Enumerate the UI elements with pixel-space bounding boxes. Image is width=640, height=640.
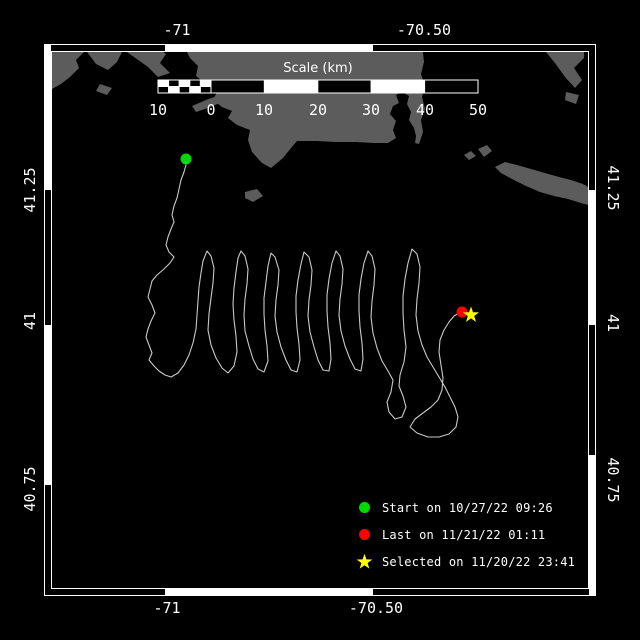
axis-label-top: -71 [163, 22, 190, 38]
axis-label-right: 40.75 [605, 457, 621, 502]
scalebar-tick-label: 10 [255, 101, 273, 119]
legend-item-start-dot: Start on 10/27/22 09:26 [356, 499, 553, 517]
legend-item-selected-star: Selected on 11/20/22 23:41 [356, 553, 575, 571]
axis-label-left: 41 [22, 312, 38, 330]
last-dot-icon [356, 527, 373, 544]
scalebar-tick-label: 20 [309, 101, 327, 119]
axis-label-right: 41.25 [605, 165, 621, 210]
scalebar-title: Scale (km) [283, 61, 352, 76]
tracking-map[interactable]: -71-70.50-71-70.5041.254140.7541.254140.… [0, 0, 640, 640]
axis-label-left: 41.25 [22, 167, 38, 212]
legend-item-last-dot: Last on 11/21/22 01:11 [356, 526, 545, 544]
scalebar-tick-label: 30 [362, 101, 380, 119]
axis-overlay: -71-70.50-71-70.5041.254140.7541.254140.… [0, 0, 640, 640]
legend-item-label: Selected on 11/20/22 23:41 [382, 555, 575, 569]
scalebar-tick-label: 0 [206, 101, 215, 119]
scalebar-tick-label: 50 [469, 101, 487, 119]
legend-item-label: Start on 10/27/22 09:26 [382, 501, 553, 515]
scalebar-tick-label: 40 [416, 101, 434, 119]
scalebar-tick-label: 10 [149, 101, 167, 119]
axis-label-bottom: -70.50 [349, 600, 403, 616]
selected-star-icon [356, 554, 373, 571]
axis-label-bottom: -71 [153, 600, 180, 616]
axis-label-right: 41 [605, 314, 621, 332]
axis-label-top: -70.50 [397, 22, 451, 38]
legend-item-label: Last on 11/21/22 01:11 [382, 528, 545, 542]
axis-label-left: 40.75 [22, 466, 38, 511]
start-dot-icon [356, 500, 373, 517]
